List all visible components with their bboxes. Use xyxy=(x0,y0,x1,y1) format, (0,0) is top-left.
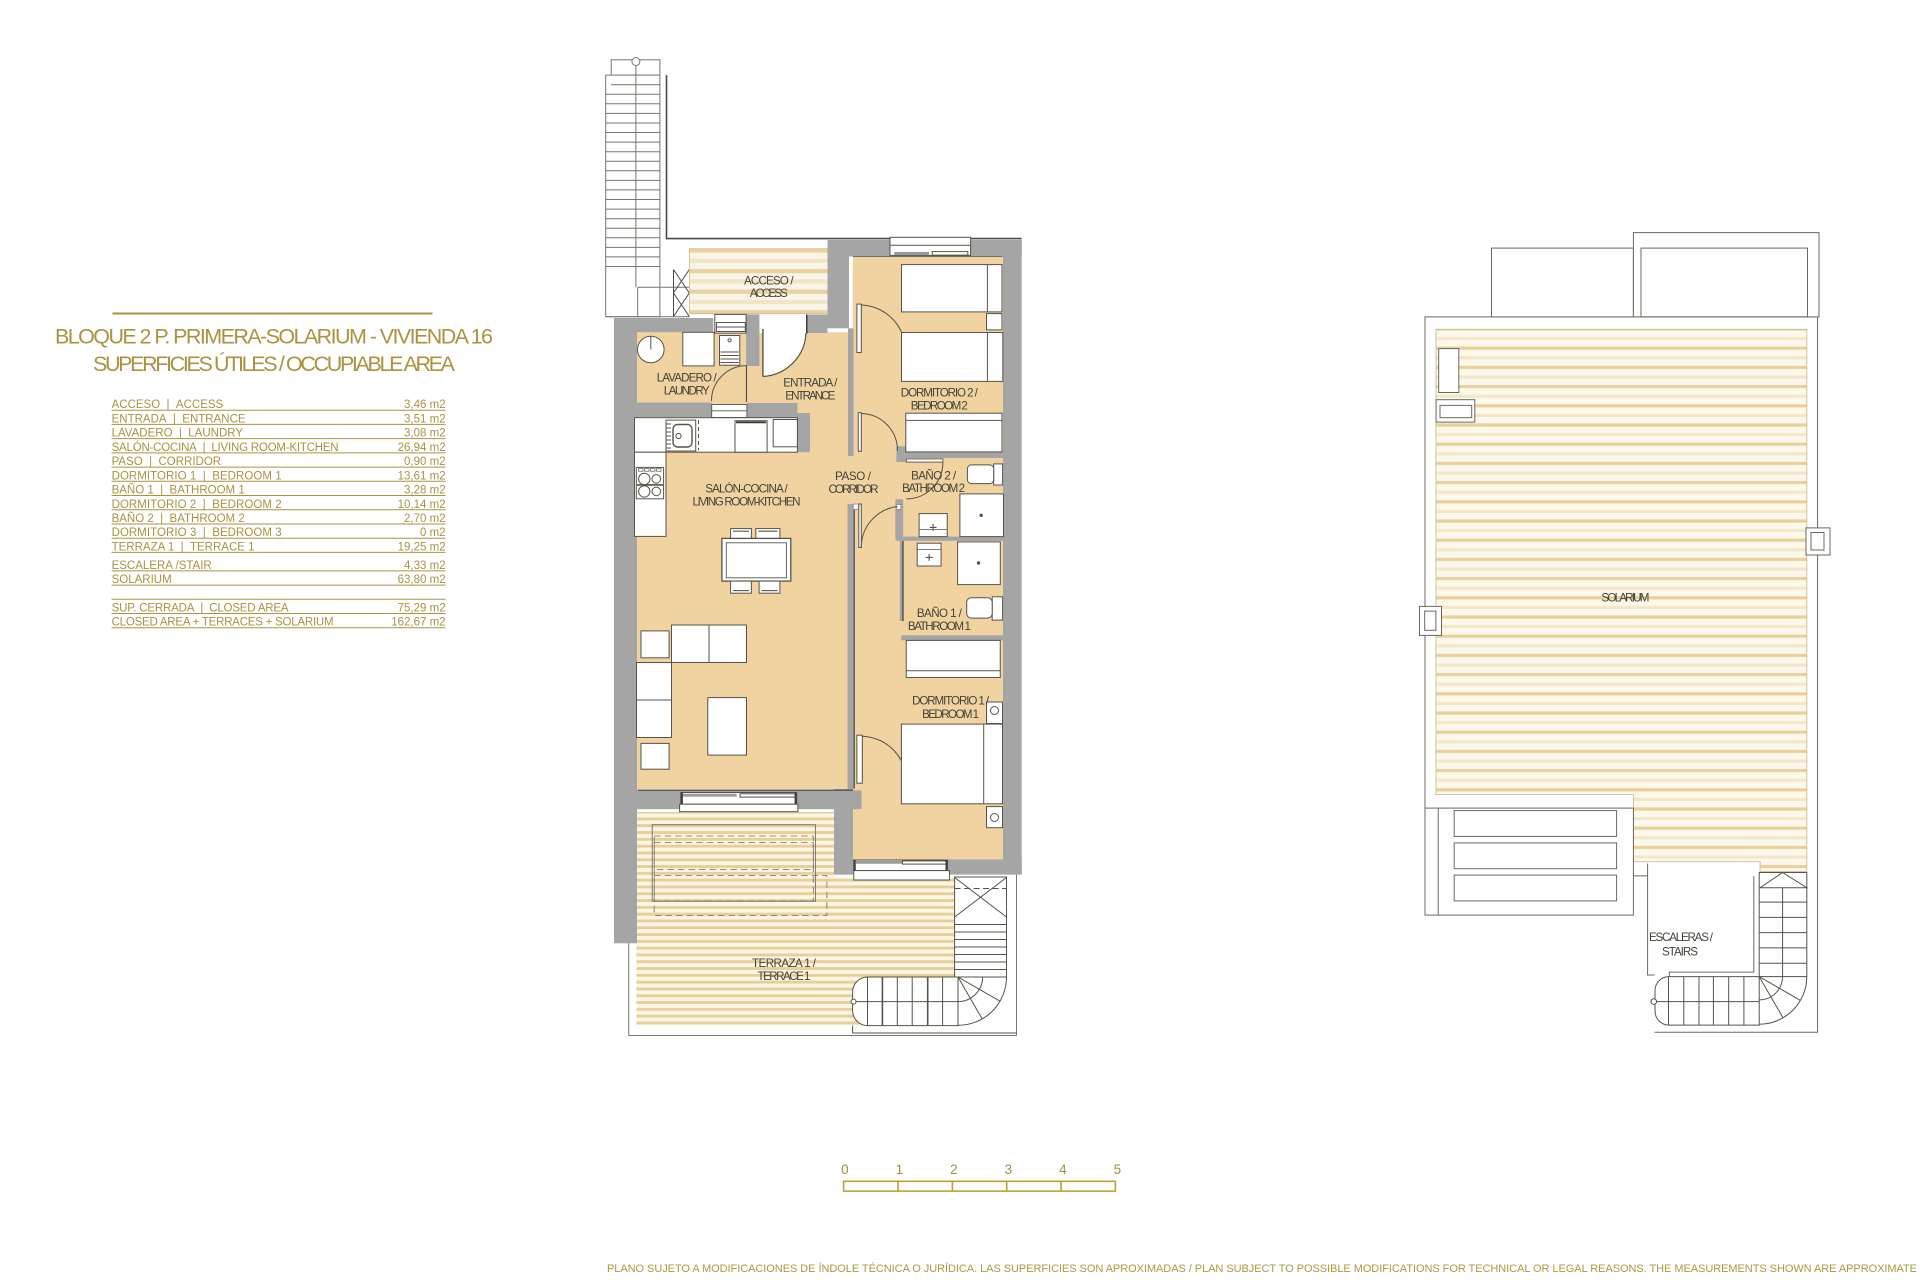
svg-text:DORMITORIO 1 | BEDROOM 1: DORMITORIO 1 | BEDROOM 1 xyxy=(112,470,282,482)
svg-text:BATHROOM 2: BATHROOM 2 xyxy=(902,482,965,495)
svg-text:3: 3 xyxy=(1005,1162,1013,1177)
svg-text:0: 0 xyxy=(841,1162,849,1177)
svg-text:ACCESO | ACCESS: ACCESO | ACCESS xyxy=(112,399,224,411)
svg-text:5: 5 xyxy=(1114,1162,1122,1177)
svg-text:TERRACE 1: TERRACE 1 xyxy=(758,970,811,983)
svg-text:ENTRANCE: ENTRANCE xyxy=(785,389,835,402)
svg-text:13,61 m2: 13,61 m2 xyxy=(398,470,446,482)
svg-text:ESCALERAS /: ESCALERAS / xyxy=(1649,931,1714,944)
svg-text:LAVADERO /: LAVADERO / xyxy=(657,372,718,385)
svg-text:162,67 m2: 162,67 m2 xyxy=(391,617,445,629)
svg-text:4,33 m2: 4,33 m2 xyxy=(404,560,446,572)
svg-text:DORMITORIO 2 /: DORMITORIO 2 / xyxy=(901,387,979,400)
svg-text:63,80 m2: 63,80 m2 xyxy=(398,574,446,586)
svg-text:10,14 m2: 10,14 m2 xyxy=(398,499,446,511)
svg-text:0,90 m2: 0,90 m2 xyxy=(404,456,446,468)
svg-text:LAVADERO | LAUNDRY: LAVADERO | LAUNDRY xyxy=(112,428,244,440)
svg-text:CORRIDOR: CORRIDOR xyxy=(829,483,879,496)
svg-text:SUP. CERRADA | CLOSED AREA: SUP. CERRADA | CLOSED AREA xyxy=(112,603,289,615)
svg-text:0 m2: 0 m2 xyxy=(420,527,446,539)
svg-text:SALÓN-COCINA /: SALÓN-COCINA / xyxy=(705,483,788,496)
svg-text:PLANO SUJETO A MODIFICACIONES: PLANO SUJETO A MODIFICACIONES DE ÍNDOLE … xyxy=(607,1262,1917,1275)
svg-text:4: 4 xyxy=(1059,1162,1067,1177)
svg-text:SUPERFICIES ÚTILES / OCCUPIABL: SUPERFICIES ÚTILES / OCCUPIABLE AREA xyxy=(93,351,456,376)
svg-text:SALÓN-COCINA | LIVING ROOM-K: SALÓN-COCINA | LIVING ROOM-KITCHEN xyxy=(112,441,339,454)
svg-text:DORMITORIO 3 | BEDROOM 3: DORMITORIO 3 | BEDROOM 3 xyxy=(112,527,282,539)
svg-text:26,94 m2: 26,94 m2 xyxy=(398,442,446,454)
svg-text:ACCESS: ACCESS xyxy=(750,287,788,300)
svg-text:BEDROOM 1: BEDROOM 1 xyxy=(922,708,979,721)
svg-text:BLOQUE 2 P. PRIMERA-SOLARIUM -: BLOQUE 2 P. PRIMERA-SOLARIUM - VIVIENDA … xyxy=(55,325,493,349)
svg-text:LIVING ROOM-KITCHEN: LIVING ROOM-KITCHEN xyxy=(693,495,801,508)
svg-text:STAIRS: STAIRS xyxy=(1662,945,1698,958)
svg-text:2: 2 xyxy=(950,1162,958,1177)
svg-text:PASO /: PASO / xyxy=(835,470,872,483)
svg-text:ENTRADA | ENTRANCE: ENTRADA | ENTRANCE xyxy=(112,413,246,425)
svg-text:19,25 m2: 19,25 m2 xyxy=(398,541,446,553)
svg-text:CLOSED AREA + TERRACES + SOLAR: CLOSED AREA + TERRACES + SOLARIUM xyxy=(112,617,334,629)
svg-text:PASO | CORRIDOR: PASO | CORRIDOR xyxy=(112,456,221,468)
svg-text:SOLARIUM: SOLARIUM xyxy=(1601,591,1649,604)
svg-text:1: 1 xyxy=(896,1162,904,1177)
svg-text:SOLARIUM: SOLARIUM xyxy=(112,574,172,586)
svg-text:75,29 m2: 75,29 m2 xyxy=(398,603,446,615)
svg-text:TERRAZA 1 | TERRACE 1: TERRAZA 1 | TERRACE 1 xyxy=(112,541,255,553)
svg-text:3,28 m2: 3,28 m2 xyxy=(404,485,446,497)
svg-text:BATHROOM 1: BATHROOM 1 xyxy=(908,620,971,633)
svg-text:BAÑO 1 /: BAÑO 1 / xyxy=(917,607,963,620)
svg-text:3,08 m2: 3,08 m2 xyxy=(404,428,446,440)
svg-text:BAÑO 2 /: BAÑO 2 / xyxy=(911,469,957,482)
svg-text:BAÑO 2 | BATHROOM 2: BAÑO 2 | BATHROOM 2 xyxy=(112,512,245,525)
svg-text:DORMITORIO 1 /: DORMITORIO 1 / xyxy=(912,695,990,708)
svg-text:3,51 m2: 3,51 m2 xyxy=(404,413,446,425)
svg-text:BEDROOM 2: BEDROOM 2 xyxy=(911,399,968,412)
svg-text:ENTRADA /: ENTRADA / xyxy=(783,377,838,390)
svg-text:DORMITORIO 2 | BEDROOM 2: DORMITORIO 2 | BEDROOM 2 xyxy=(112,499,282,511)
svg-text:LAUNDRY: LAUNDRY xyxy=(664,384,710,397)
svg-text:ESCALERA /STAIR: ESCALERA /STAIR xyxy=(112,560,212,572)
svg-text:ACCESO /: ACCESO / xyxy=(744,274,794,287)
svg-text:BAÑO 1 | BATHROOM 1: BAÑO 1 | BATHROOM 1 xyxy=(112,484,245,497)
svg-text:TERRAZA 1 /: TERRAZA 1 / xyxy=(752,957,817,970)
svg-text:2,70 m2: 2,70 m2 xyxy=(404,513,446,525)
svg-text:3,46 m2: 3,46 m2 xyxy=(404,399,446,411)
